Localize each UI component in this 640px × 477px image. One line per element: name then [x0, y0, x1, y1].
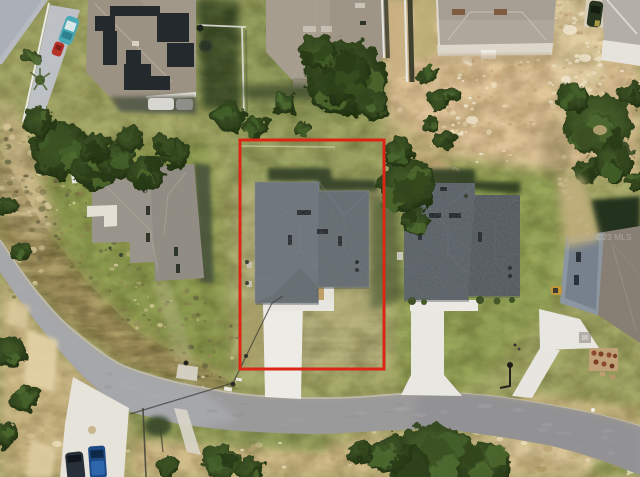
svg-text:©23 MLS: ©23 MLS — [596, 232, 632, 242]
